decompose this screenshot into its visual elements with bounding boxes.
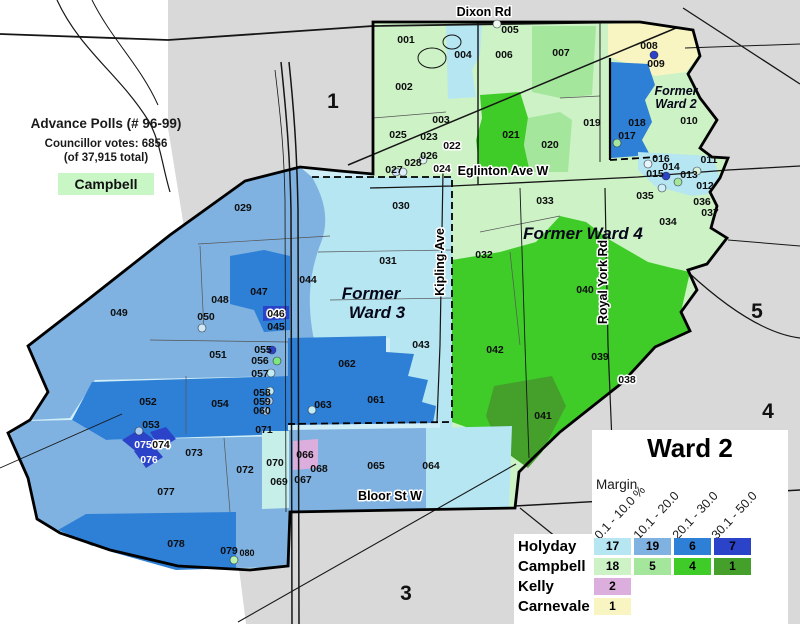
svg-text:047: 047: [250, 286, 268, 298]
svg-text:080: 080: [239, 548, 254, 558]
svg-text:065: 065: [367, 460, 385, 472]
svg-text:046: 046: [267, 308, 285, 320]
svg-text:017: 017: [618, 130, 636, 142]
svg-text:074: 074: [152, 439, 170, 451]
svg-text:052: 052: [139, 396, 157, 408]
legend-swatch: 6: [674, 538, 711, 555]
candidate-name: Carnevale: [518, 598, 594, 615]
svg-text:076: 076: [140, 454, 158, 466]
legend-swatch: 18: [594, 558, 631, 575]
svg-text:063: 063: [314, 399, 332, 411]
svg-text:011: 011: [701, 154, 718, 166]
svg-text:064: 064: [422, 460, 440, 472]
svg-text:035: 035: [636, 190, 654, 202]
svg-text:Former: Former: [342, 284, 402, 303]
svg-text:012: 012: [696, 180, 714, 192]
svg-text:041: 041: [534, 410, 552, 422]
svg-text:032: 032: [475, 249, 493, 261]
ward2-election-map: 0010020030040050060070080090100110120130…: [0, 0, 800, 624]
svg-text:030: 030: [392, 200, 410, 212]
legend-swatch: 2: [594, 578, 631, 595]
svg-text:013: 013: [680, 169, 698, 181]
advance-polls-title: Advance Polls (# 96-99): [6, 116, 206, 131]
svg-text:071: 071: [255, 424, 273, 436]
svg-text:Royal York Rd: Royal York Rd: [596, 240, 610, 324]
svg-text:029: 029: [234, 202, 252, 214]
candidate-name: Holyday: [518, 538, 594, 555]
svg-text:3: 3: [400, 582, 412, 605]
svg-text:069: 069: [270, 476, 288, 488]
svg-text:022: 022: [443, 140, 461, 152]
svg-text:Ward 3: Ward 3: [349, 303, 406, 322]
svg-text:026: 026: [420, 150, 438, 162]
svg-text:Eglinton Ave W: Eglinton Ave W: [458, 164, 549, 178]
svg-text:018: 018: [628, 117, 646, 129]
svg-text:016: 016: [652, 153, 670, 165]
svg-text:062: 062: [338, 358, 356, 370]
svg-text:061: 061: [367, 394, 385, 406]
svg-text:009: 009: [647, 58, 665, 70]
svg-text:020: 020: [541, 139, 559, 151]
svg-text:Kipling Ave: Kipling Ave: [433, 228, 447, 296]
svg-text:048: 048: [211, 294, 229, 306]
legend-swatch: 19: [634, 538, 671, 555]
svg-text:008: 008: [640, 40, 658, 52]
svg-text:024: 024: [433, 163, 451, 175]
legend-row: Kelly2: [518, 576, 754, 596]
svg-text:001: 001: [397, 34, 415, 46]
svg-text:1: 1: [327, 90, 339, 113]
svg-text:Former: Former: [654, 84, 698, 98]
advance-winner-chip: Campbell: [58, 173, 153, 195]
svg-text:019: 019: [583, 117, 601, 129]
svg-text:067: 067: [294, 474, 312, 486]
svg-text:007: 007: [552, 47, 570, 59]
svg-text:066: 066: [296, 449, 314, 461]
svg-text:075: 075: [134, 439, 152, 451]
svg-text:4: 4: [762, 400, 774, 423]
svg-text:5: 5: [751, 300, 763, 323]
legend-swatch: 7: [714, 538, 751, 555]
legend-swatch: 17: [594, 538, 631, 555]
svg-text:003: 003: [432, 114, 450, 126]
svg-text:015: 015: [646, 168, 664, 180]
svg-text:033: 033: [536, 195, 554, 207]
svg-text:070: 070: [266, 457, 284, 469]
svg-text:051: 051: [209, 349, 227, 361]
svg-text:039: 039: [591, 351, 609, 363]
svg-text:042: 042: [486, 344, 504, 356]
svg-text:006: 006: [495, 49, 513, 61]
svg-text:028: 028: [404, 157, 422, 169]
councillor-votes: Councillor votes: 6856: [6, 137, 206, 151]
svg-text:Ward 2: Ward 2: [655, 97, 696, 111]
svg-text:002: 002: [395, 81, 413, 93]
svg-text:044: 044: [299, 274, 317, 286]
svg-text:040: 040: [576, 284, 594, 296]
svg-text:031: 031: [379, 255, 397, 267]
svg-text:068: 068: [310, 463, 328, 475]
candidate-name: Kelly: [518, 578, 594, 595]
candidate-name: Campbell: [518, 558, 594, 575]
svg-text:037: 037: [701, 207, 719, 219]
svg-text:010: 010: [680, 115, 698, 127]
legend-swatch: 1: [714, 558, 751, 575]
svg-text:005: 005: [501, 24, 519, 36]
svg-text:056: 056: [251, 355, 269, 367]
svg-text:027: 027: [385, 164, 403, 176]
svg-text:078: 078: [167, 538, 185, 550]
svg-text:Former Ward 4: Former Ward 4: [523, 224, 643, 243]
svg-text:025: 025: [389, 129, 407, 141]
svg-text:077: 077: [157, 486, 175, 498]
svg-text:050: 050: [197, 311, 215, 323]
legend-row: Carnevale1: [518, 596, 754, 616]
legend-swatch: 4: [674, 558, 711, 575]
legend-swatch: 1: [594, 598, 631, 615]
svg-text:054: 054: [211, 398, 229, 410]
svg-text:057: 057: [251, 368, 269, 380]
legend-row: Campbell18541: [518, 556, 754, 576]
svg-text:Bloor St W: Bloor St W: [358, 489, 422, 503]
svg-text:072: 072: [236, 464, 254, 476]
svg-text:038: 038: [618, 374, 636, 386]
legend-rows: Holyday171967Campbell18541Kelly2Carneval…: [518, 536, 754, 616]
svg-text:021: 021: [502, 129, 520, 141]
advance-polls-infobox: Advance Polls (# 96-99) Councillor votes…: [6, 116, 206, 195]
legend-swatch: 5: [634, 558, 671, 575]
svg-text:Dixon Rd: Dixon Rd: [457, 5, 512, 19]
svg-text:053: 053: [142, 419, 160, 431]
svg-text:049: 049: [110, 307, 128, 319]
svg-text:023: 023: [420, 131, 438, 143]
svg-text:043: 043: [412, 339, 430, 351]
legend-title: Ward 2: [592, 433, 788, 464]
svg-text:004: 004: [454, 49, 472, 61]
svg-text:079: 079: [220, 545, 238, 557]
legend-row: Holyday171967: [518, 536, 754, 556]
svg-text:073: 073: [185, 447, 203, 459]
svg-text:045: 045: [267, 321, 285, 333]
total-votes: (of 37,915 total): [6, 151, 206, 165]
svg-text:060: 060: [253, 405, 271, 417]
svg-text:034: 034: [659, 216, 677, 228]
